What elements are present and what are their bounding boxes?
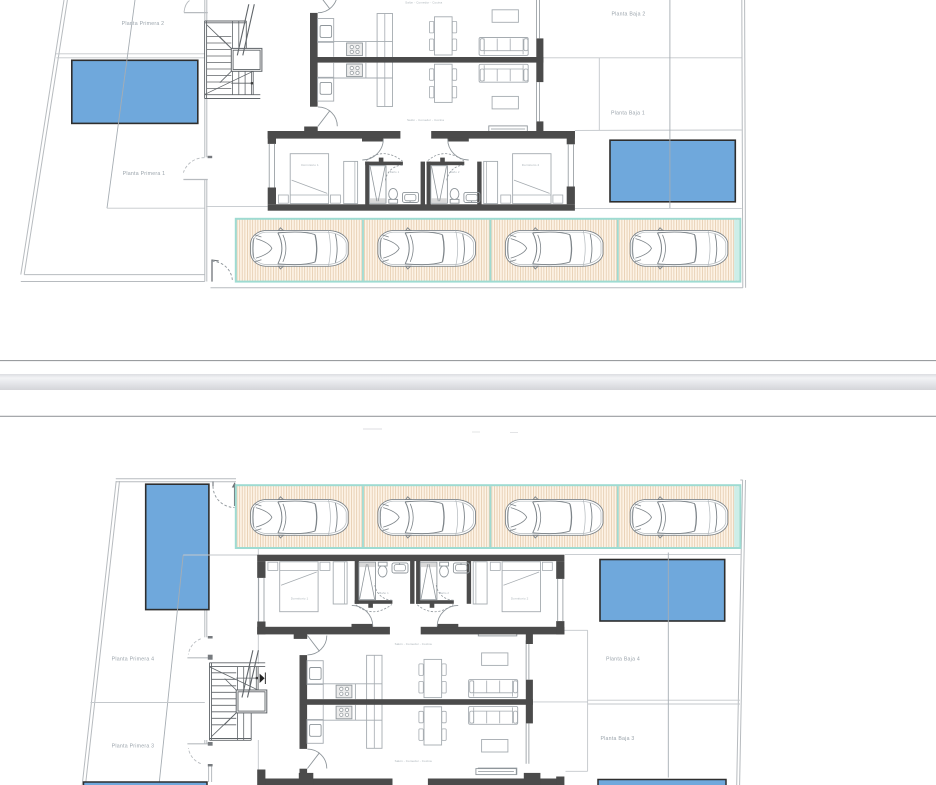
svg-text:Planta Baja 2: Planta Baja 2 (611, 12, 645, 18)
svg-text:Salón - Comedor - Cocina: Salón - Comedor - Cocina (395, 759, 432, 763)
svg-text:Baño 1: Baño 1 (379, 591, 389, 595)
svg-text:Dormitorio 2: Dormitorio 2 (511, 596, 529, 600)
svg-text:Dormitorio 2: Dormitorio 2 (522, 163, 540, 167)
svg-text:Salón - Comedor - Cocina: Salón - Comedor - Cocina (407, 118, 444, 122)
svg-text:Planta Primera 1: Planta Primera 1 (123, 171, 166, 177)
svg-text:Salón - Comedor - Cocina: Salón - Comedor - Cocina (395, 642, 432, 646)
svg-text:Dormitorio 1: Dormitorio 1 (301, 163, 319, 167)
svg-text:Planta Primera 4: Planta Primera 4 (112, 657, 155, 663)
svg-text:Planta Primera 2: Planta Primera 2 (122, 21, 165, 27)
svg-text:Planta Baja 3: Planta Baja 3 (600, 736, 634, 742)
svg-text:Planta Baja 1: Planta Baja 1 (611, 111, 645, 117)
svg-text:Planta Baja 4: Planta Baja 4 (606, 657, 640, 663)
svg-text:Planta Primera 3: Planta Primera 3 (112, 744, 155, 750)
svg-text:Baño 1: Baño 1 (390, 170, 400, 174)
svg-text:Dormitorio 1: Dormitorio 1 (291, 596, 309, 600)
svg-text:Baño 2: Baño 2 (450, 170, 460, 174)
svg-text:Salón - Comedor - Cocina: Salón - Comedor - Cocina (405, 1, 442, 5)
svg-text:Baño 2: Baño 2 (440, 591, 450, 595)
